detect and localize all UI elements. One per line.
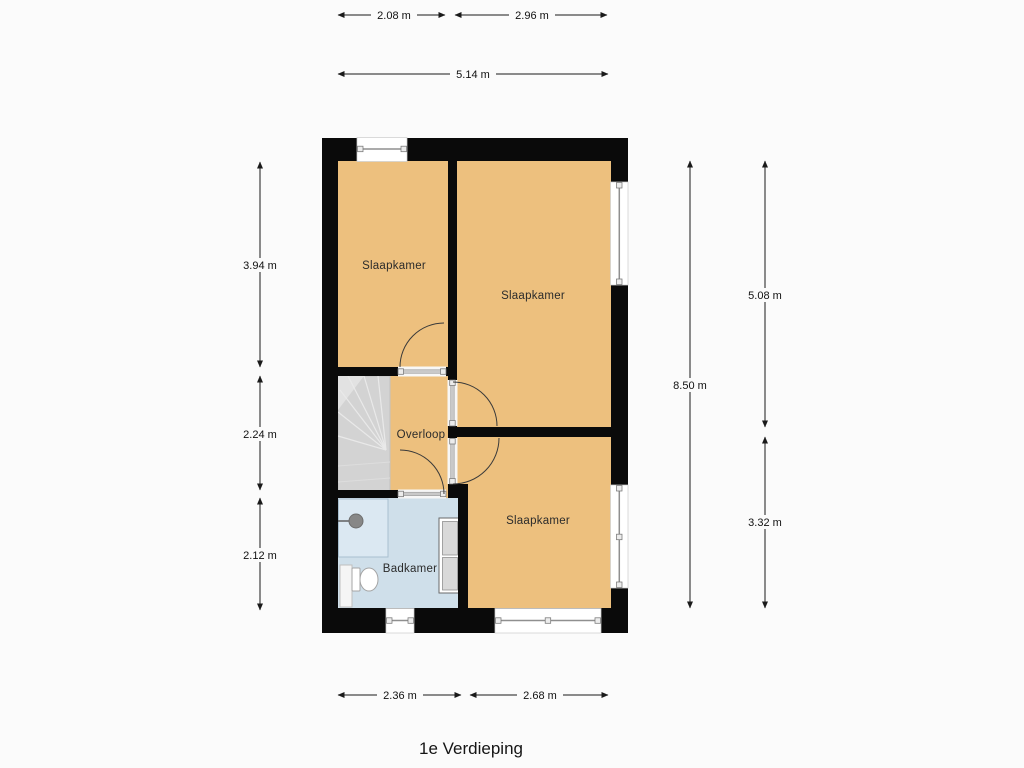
label-landing: Overloop <box>397 429 446 441</box>
floorplan-svg: Slaapkamer Slaapkamer Slaapkamer Overloo… <box>0 0 1024 768</box>
svg-text:5.08 m: 5.08 m <box>748 290 782 302</box>
window-bottom-small <box>386 609 414 634</box>
stairs <box>338 376 390 492</box>
label-bedroom2: Slaapkamer <box>501 290 565 302</box>
dim-top-left: 2.08 m <box>338 8 445 22</box>
floor-plan: Slaapkamer Slaapkamer Slaapkamer Overloo… <box>322 138 628 634</box>
svg-text:3.94 m: 3.94 m <box>243 260 277 272</box>
dim-left-1: 3.94 m <box>237 162 283 367</box>
svg-text:2.24 m: 2.24 m <box>243 429 277 441</box>
wall-between-top-bedrooms <box>448 161 457 380</box>
dim-right-1: 5.08 m <box>742 161 788 427</box>
shower-head <box>349 514 363 528</box>
dim-left-2: 2.24 m <box>237 376 283 490</box>
window-right-lower <box>611 485 629 588</box>
dim-right-total: 8.50 m <box>667 161 713 608</box>
dim-bottom-right: 2.68 m <box>470 688 608 702</box>
shower-tray <box>339 499 389 557</box>
wall-bathroom-top <box>338 490 398 498</box>
dim-left-3: 2.12 m <box>237 498 283 610</box>
svg-text:2.36 m: 2.36 m <box>383 690 417 702</box>
shower-unit <box>439 518 461 593</box>
dim-top-total: 5.14 m <box>338 67 608 81</box>
svg-text:8.50 m: 8.50 m <box>673 380 707 392</box>
floorplan-canvas: Slaapkamer Slaapkamer Slaapkamer Overloo… <box>0 0 1024 768</box>
svg-text:2.68 m: 2.68 m <box>523 690 557 702</box>
bathroom-cabinet <box>340 565 352 607</box>
label-bedroom1: Slaapkamer <box>362 260 426 272</box>
window-right-upper <box>611 182 629 285</box>
dim-bottom-left: 2.36 m <box>338 688 461 702</box>
wall-left <box>322 138 338 633</box>
toilet <box>352 568 378 591</box>
svg-text:2.08 m: 2.08 m <box>377 10 411 22</box>
wall-bathroom-right <box>458 490 468 608</box>
window-top <box>357 138 407 162</box>
wall-bedroom1-bottom <box>338 367 398 376</box>
plan-title: 1e Verdieping <box>419 739 523 758</box>
window-bottom-large <box>495 609 601 634</box>
wall-between-right-bedrooms <box>448 427 611 437</box>
svg-text:5.14 m: 5.14 m <box>456 69 490 81</box>
svg-text:3.32 m: 3.32 m <box>748 517 782 529</box>
svg-text:2.96 m: 2.96 m <box>515 10 549 22</box>
dim-top-right: 2.96 m <box>455 8 607 22</box>
label-bathroom: Badkamer <box>383 563 437 575</box>
svg-text:2.12 m: 2.12 m <box>243 550 277 562</box>
dim-right-2: 3.32 m <box>742 437 788 608</box>
label-bedroom3: Slaapkamer <box>506 515 570 527</box>
